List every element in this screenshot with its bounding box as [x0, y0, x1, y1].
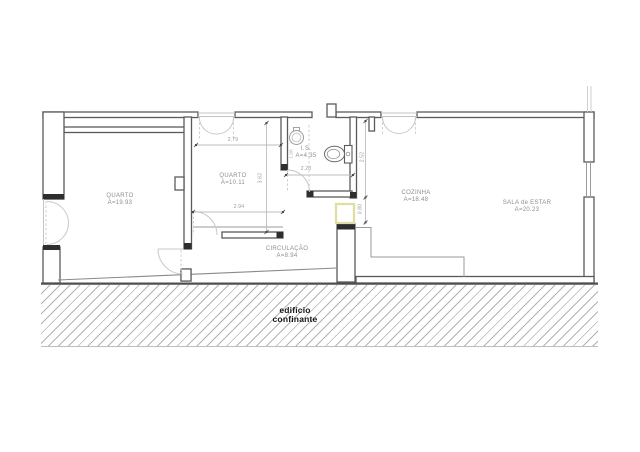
room-area: A=19.93 — [106, 200, 133, 207]
dimension-label-080: 0.80 — [359, 204, 364, 215]
room-name: CIRCULAÇÃO — [266, 246, 308, 253]
dimension-label-220: 2.20 — [301, 167, 312, 172]
adjacent-building-line2: confinante — [273, 315, 318, 324]
dimension-label-294: 2.94 — [234, 205, 245, 210]
room-area: A=18.48 — [401, 197, 430, 204]
floor-plan-drawing — [0, 0, 640, 452]
room-name: COZINHA — [401, 190, 430, 197]
room-name: QUARTO — [219, 173, 246, 180]
room-name: QUARTO — [106, 193, 133, 200]
room-label-circulacao: CIRCULAÇÃO A=8.94 — [266, 246, 308, 259]
adjacent-building-label: edifício confinante — [273, 306, 318, 324]
sink-fixture — [290, 128, 304, 145]
dimension-label-362: 3.62 — [259, 173, 264, 184]
room-area: A=20.23 — [503, 207, 551, 214]
dimension-label-252: 2.52 — [360, 152, 365, 163]
room-name: SALA de ESTAR — [503, 200, 551, 207]
dimension-label-279: 2.79 — [228, 138, 239, 143]
room-label-quarto-1: QUARTO A=19.93 — [106, 193, 133, 206]
room-area: A=4.35 — [296, 153, 317, 160]
room-label-cozinha: COZINHA A=18.48 — [401, 190, 430, 203]
toilet-fixture — [325, 146, 353, 164]
room-label-quarto-2: QUARTO A=10.11 — [219, 173, 246, 186]
room-area: A=10.11 — [219, 180, 246, 187]
room-area: A=8.94 — [266, 253, 308, 260]
floor-plan: QUARTO A=19.93 QUARTO A=10.11 I.S. A=4.3… — [0, 0, 640, 452]
room-label-is: I.S. A=4.35 — [296, 146, 317, 159]
room-label-sala: SALA de ESTAR A=20.23 — [503, 200, 551, 213]
highlighted-shaft — [336, 204, 354, 223]
dimension-label-198: 1.98 — [288, 149, 293, 159]
